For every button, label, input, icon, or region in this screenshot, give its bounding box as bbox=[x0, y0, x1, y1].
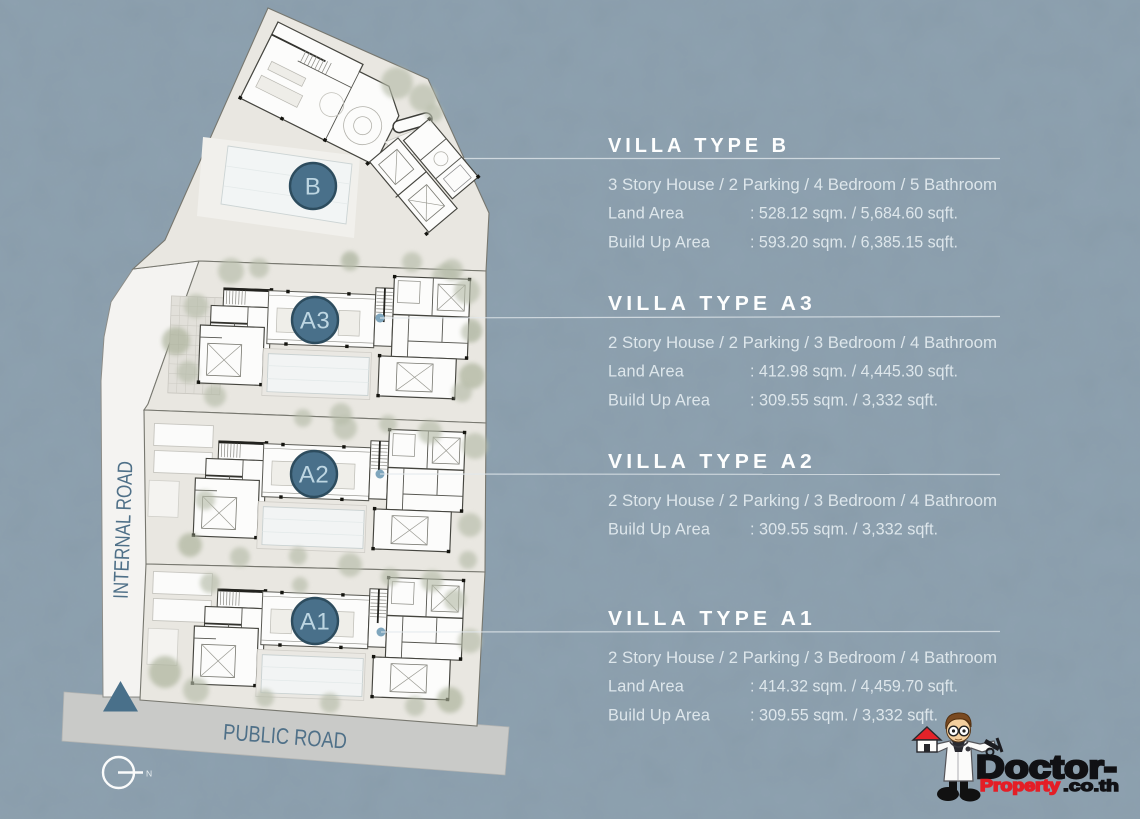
svg-text:: 528.12 sqm. / 5,684.60 sqft.: : 528.12 sqm. / 5,684.60 sqft. bbox=[750, 205, 958, 223]
svg-text:Build Up Area: Build Up Area bbox=[608, 706, 711, 724]
svg-text:2 Story House / 2 Parking / 3: 2 Story House / 2 Parking / 3 Bedroom / … bbox=[608, 649, 997, 667]
svg-text:VILLA TYPE A2: VILLA TYPE A2 bbox=[608, 451, 816, 473]
svg-text:B: B bbox=[305, 174, 322, 201]
svg-text:3 Story House / 2 Parking / 4: 3 Story House / 2 Parking / 4 Bedroom / … bbox=[608, 176, 997, 194]
svg-text:VILLA TYPE A3: VILLA TYPE A3 bbox=[608, 293, 816, 315]
svg-text:VILLA TYPE A1: VILLA TYPE A1 bbox=[608, 608, 816, 630]
svg-text:: 412.98 sqm. / 4,445.30 sqft.: : 412.98 sqm. / 4,445.30 sqft. bbox=[750, 363, 958, 381]
svg-text:: 309.55 sqm. / 3,332 sqft.: : 309.55 sqm. / 3,332 sqft. bbox=[750, 521, 938, 539]
svg-text:: 414.32 sqm. / 4,459.70 sqft.: : 414.32 sqm. / 4,459.70 sqft. bbox=[750, 678, 958, 696]
svg-text:INTERNAL ROAD: INTERNAL ROAD bbox=[110, 461, 138, 600]
svg-text:Build Up Area: Build Up Area bbox=[608, 391, 711, 409]
svg-text:Build Up Area: Build Up Area bbox=[608, 233, 711, 251]
svg-text:VILLA TYPE B: VILLA TYPE B bbox=[608, 135, 790, 157]
svg-text:: 593.20 sqm. / 6,385.15 sqft.: : 593.20 sqm. / 6,385.15 sqft. bbox=[750, 233, 958, 251]
svg-text:Land Area: Land Area bbox=[608, 205, 685, 223]
svg-text:: 309.55 sqm. / 3,332 sqft.: : 309.55 sqm. / 3,332 sqft. bbox=[750, 706, 938, 724]
svg-text:A3: A3 bbox=[300, 308, 330, 335]
svg-text:N: N bbox=[146, 769, 152, 779]
svg-text:A2: A2 bbox=[299, 462, 329, 489]
svg-text:.co.th: .co.th bbox=[1063, 778, 1119, 795]
svg-text:2 Story House / 2 Parking / 3: 2 Story House / 2 Parking / 3 Bedroom / … bbox=[608, 334, 997, 352]
svg-text:A1: A1 bbox=[300, 609, 330, 636]
svg-text:Build Up Area: Build Up Area bbox=[608, 521, 711, 539]
svg-text:Property: Property bbox=[980, 777, 1061, 795]
svg-text:Land Area: Land Area bbox=[608, 678, 685, 696]
svg-text:Land Area: Land Area bbox=[608, 363, 685, 381]
svg-text:2 Story House / 2 Parking / 3: 2 Story House / 2 Parking / 3 Bedroom / … bbox=[608, 492, 997, 510]
svg-text:: 309.55 sqm. / 3,332 sqft.: : 309.55 sqm. / 3,332 sqft. bbox=[750, 391, 938, 409]
